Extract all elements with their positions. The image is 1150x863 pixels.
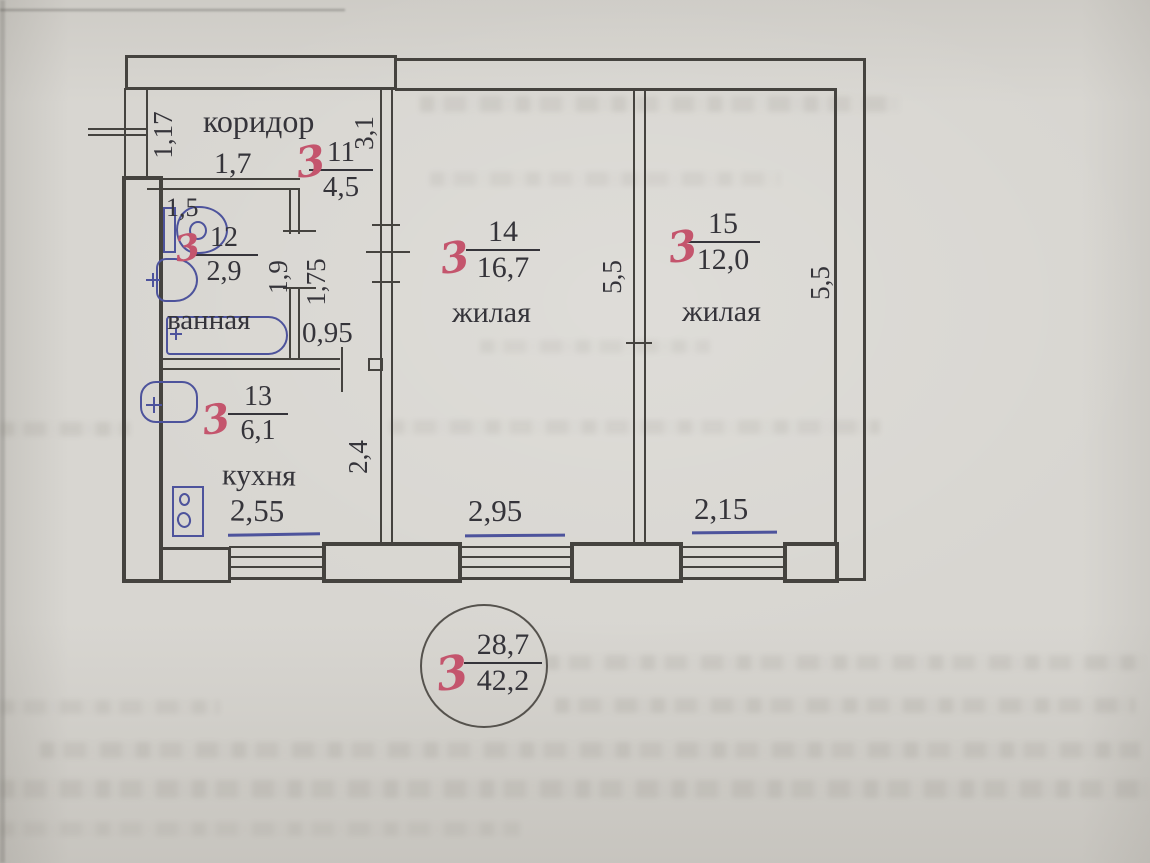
red-litera-living2: 3 — [665, 224, 700, 270]
room-fraction-living1: 14 16,7 — [466, 216, 540, 285]
wall-inner-top-right — [395, 88, 836, 91]
wall-pier — [570, 542, 683, 583]
red-litera-living1: 3 — [437, 235, 472, 281]
stamp-fraction: 28,7 42,2 — [464, 629, 542, 698]
room-area-living1: 16,7 — [466, 251, 540, 284]
bath-door-tick — [283, 230, 316, 232]
room-label-living1: жилая — [452, 296, 531, 330]
kitchen-window — [229, 546, 323, 548]
bleed-smudge — [0, 422, 130, 436]
bleed-smudge — [480, 340, 710, 353]
dim-living2-length: 5,5 — [790, 253, 850, 313]
kitchen-window — [229, 556, 323, 558]
dim-corridor-width: 1,7 — [214, 147, 252, 181]
room-number-living2: 15 — [686, 208, 760, 243]
wall-outer-right — [863, 58, 866, 580]
scan-edge-line — [0, 9, 345, 11]
scanned-floor-plan-page: коридор 1,7 1,17 3,1 3 11 4,5 1,5 3 12 2… — [0, 0, 1150, 863]
bleed-smudge — [0, 780, 1150, 798]
red-litera-bathroom: 3 — [172, 228, 202, 267]
living1-window — [462, 566, 570, 568]
dim-entry-width: 1,17 — [131, 104, 195, 166]
living1-window — [462, 577, 570, 580]
wall-outer-left — [122, 176, 163, 583]
wall-outer-top-right — [395, 58, 865, 61]
bleed-smudge — [420, 96, 900, 112]
room-label-bathroom: ванная — [167, 304, 250, 337]
dim-wc-width: 1,5 — [166, 193, 199, 223]
living1-window — [462, 546, 570, 548]
wall-bottom-segment — [159, 547, 231, 583]
dim-living1-width: 2,95 — [468, 493, 522, 529]
dim-underline-living1 — [465, 534, 565, 537]
partition-stub — [368, 358, 383, 371]
living1-window — [462, 556, 570, 558]
wall-bottom-right-join — [836, 578, 866, 581]
living2-window — [683, 577, 783, 580]
room-label-kitchen: кухня — [222, 458, 297, 493]
sink-tap-icon — [152, 273, 154, 287]
room-label-living2: жилая — [682, 295, 761, 329]
dim-kitchen-length: 2,4 — [328, 427, 388, 487]
stamp-denominator: 42,2 — [464, 664, 542, 697]
wall-outer-top-left — [125, 55, 397, 90]
room-number-kitchen: 13 — [228, 382, 288, 415]
partition-bath-kitchen — [160, 358, 340, 370]
bleed-smudge — [0, 700, 220, 714]
red-litera-corridor: 3 — [293, 139, 328, 185]
scan-edge-strip — [0, 0, 5, 863]
partition-tick — [366, 251, 410, 253]
dim-living1-length: 5,5 — [582, 247, 642, 307]
wall-inner-right — [834, 88, 837, 544]
living2-window — [683, 566, 783, 568]
dim-underline-living2 — [692, 531, 777, 534]
wall-pier — [322, 542, 462, 583]
dim-door-width: 0,95 — [302, 317, 353, 350]
partition-bath-hall-upper — [289, 188, 300, 234]
kitchen-sink-tap-icon — [153, 397, 155, 413]
kitchen-window — [229, 566, 323, 568]
living2-window — [683, 556, 783, 558]
partition-tick — [372, 281, 400, 283]
dim-underline-kitchen — [228, 532, 320, 536]
wall-entry-outer — [124, 88, 126, 178]
dim-hall-length: 1,75 — [281, 247, 351, 317]
bleed-smudge — [545, 655, 1145, 670]
bleed-smudge — [430, 172, 780, 186]
kitchen-door-tick — [341, 347, 343, 392]
dim-living2-width: 2,15 — [694, 491, 748, 527]
stamp-numerator: 28,7 — [464, 629, 542, 664]
partition-living1-living2 — [633, 88, 646, 544]
living2-window — [683, 546, 783, 548]
dim-kitchen-width: 2,55 — [230, 493, 285, 530]
red-litera-kitchen: 3 — [199, 398, 233, 442]
kitchen-sink-icon — [140, 381, 198, 423]
room-label-corridor: коридор — [203, 103, 314, 140]
stove-burner-icon — [179, 493, 190, 506]
room-number-living1: 14 — [466, 216, 540, 251]
bleed-smudge — [0, 822, 520, 836]
room-fraction-kitchen: 13 6,1 — [228, 382, 288, 446]
room-area-kitchen: 6,1 — [228, 415, 288, 446]
partition-tick — [372, 224, 400, 226]
bleed-smudge — [555, 698, 1135, 713]
kitchen-window — [229, 577, 323, 580]
partition-tick — [626, 342, 652, 344]
bleed-smudge — [40, 742, 1140, 758]
wall-pier-corner — [783, 542, 839, 583]
